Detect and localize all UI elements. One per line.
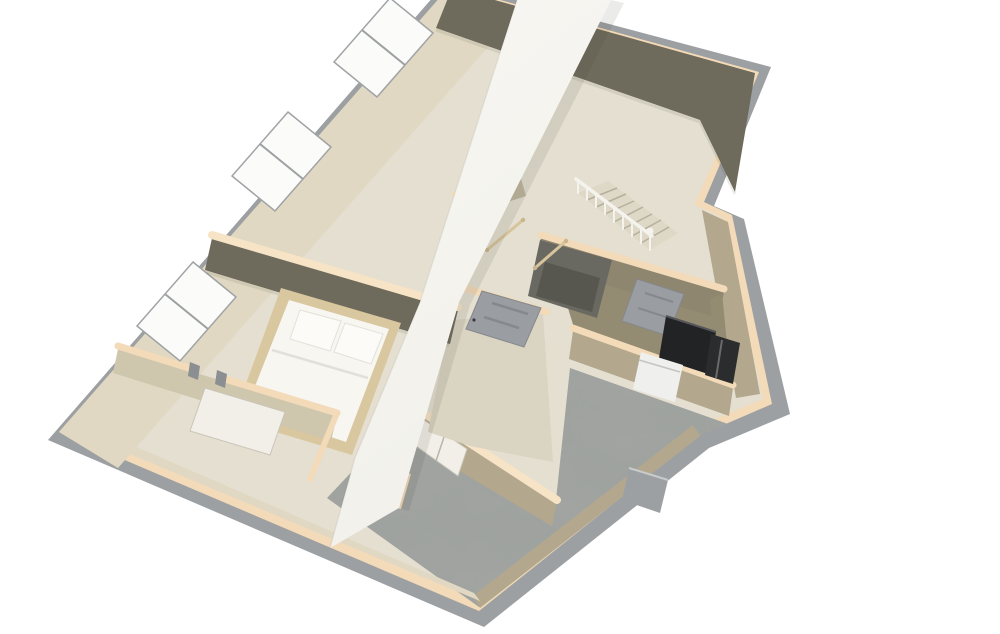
newel-knob [647,228,654,235]
floor-plan-render [0,0,1000,634]
floor-plan-svg [0,0,1000,634]
hall-door-knob [472,318,475,321]
